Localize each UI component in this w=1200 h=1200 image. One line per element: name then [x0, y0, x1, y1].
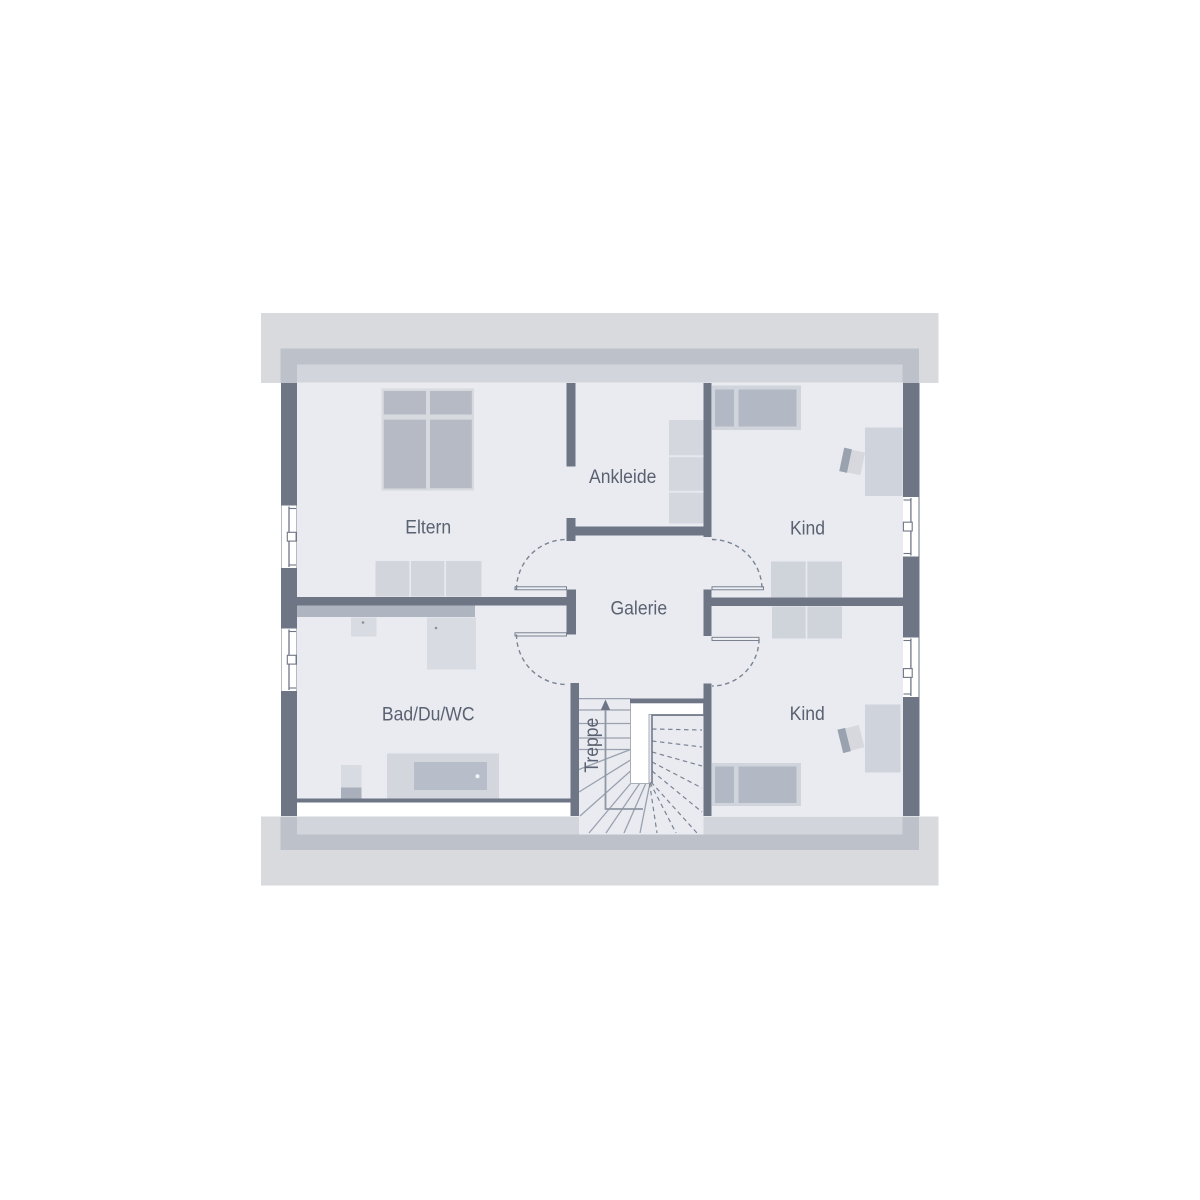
svg-text:Eltern: Eltern — [405, 516, 451, 538]
svg-text:Treppe: Treppe — [580, 718, 602, 773]
svg-text:Kind: Kind — [790, 517, 825, 539]
svg-text:Kind: Kind — [790, 702, 825, 724]
svg-text:Ankleide: Ankleide — [589, 465, 656, 487]
svg-text:Galerie: Galerie — [611, 597, 668, 619]
svg-text:Bad/Du/WC: Bad/Du/WC — [382, 703, 475, 725]
